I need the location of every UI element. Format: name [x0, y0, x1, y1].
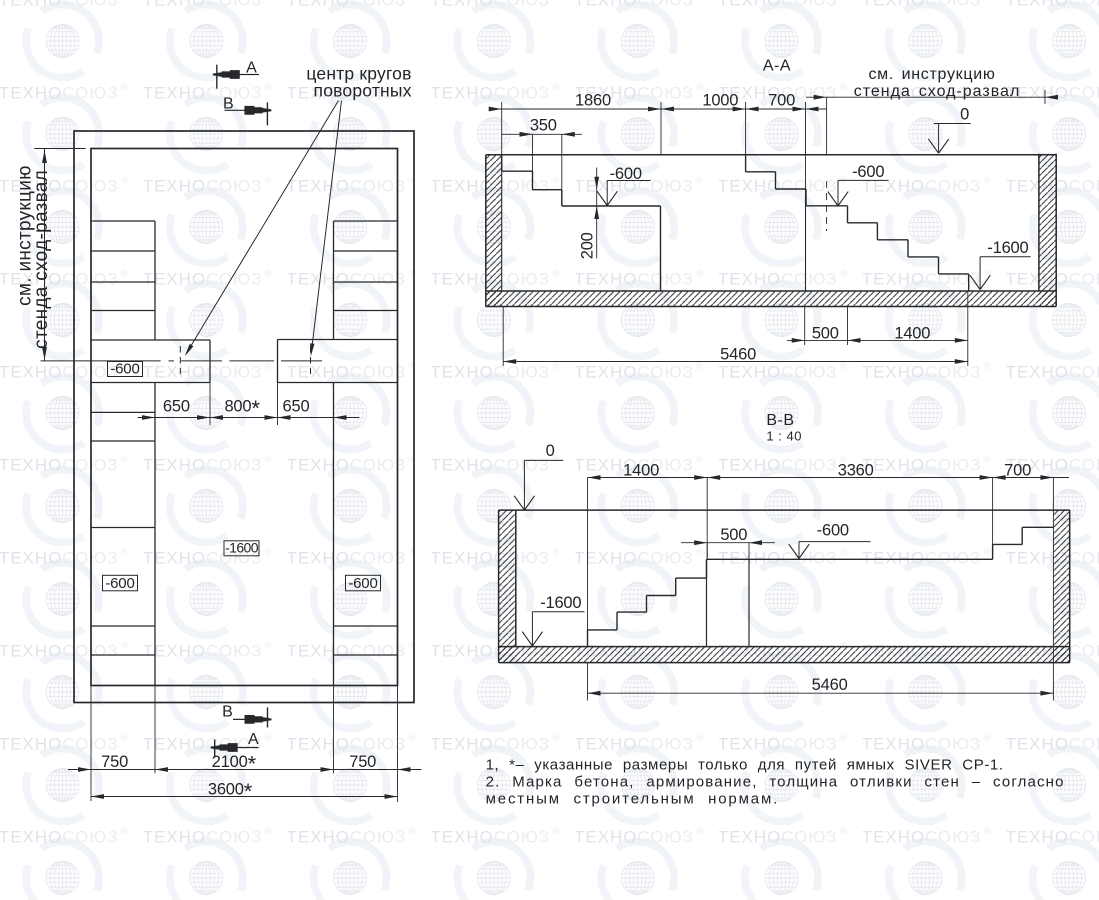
svg-text:2. Марка бетона, армирование,: 2. Марка бетона, армирование, толщина от…	[486, 774, 1065, 791]
svg-text:1 : 40: 1 : 40	[766, 429, 802, 444]
svg-text:650: 650	[163, 397, 190, 415]
svg-text:-1600: -1600	[225, 540, 259, 556]
svg-text:-600: -600	[348, 575, 377, 592]
svg-text:700: 700	[768, 92, 795, 110]
svg-text:-600: -600	[817, 522, 849, 540]
svg-text:3360: 3360	[838, 461, 874, 479]
svg-text:5460: 5460	[812, 676, 848, 694]
svg-text:650: 650	[283, 397, 310, 415]
svg-text:-600: -600	[110, 361, 139, 378]
svg-text:1400: 1400	[623, 461, 659, 479]
svg-text:1, *– указанные размеры только: 1, *– указанные размеры только для путей…	[486, 757, 1004, 774]
svg-text:B-B: B-B	[766, 412, 794, 429]
svg-text:-600: -600	[610, 165, 642, 183]
svg-text:см. инструкцию: см. инструкцию	[868, 66, 995, 83]
svg-text:-600: -600	[105, 575, 134, 592]
svg-text:700: 700	[1004, 461, 1031, 479]
svg-text:-600: -600	[852, 163, 884, 181]
svg-text:0: 0	[546, 442, 555, 460]
svg-text:местным строительным нормам.: местным строительным нормам.	[486, 791, 780, 808]
svg-text:стенда сход-развал: стенда сход-развал	[31, 170, 52, 349]
svg-text:-1600: -1600	[987, 239, 1028, 257]
svg-text:A: A	[248, 731, 259, 748]
svg-text:-1600: -1600	[540, 594, 581, 612]
svg-text:200: 200	[579, 232, 597, 259]
svg-text:750: 750	[101, 753, 128, 771]
svg-text:0: 0	[960, 106, 969, 124]
svg-text:B: B	[222, 704, 233, 721]
svg-text:5460: 5460	[720, 346, 756, 364]
svg-text:1860: 1860	[575, 92, 611, 110]
svg-text:A: A	[246, 60, 257, 77]
svg-text:1400: 1400	[894, 324, 930, 342]
svg-text:поворотных: поворотных	[314, 80, 412, 100]
svg-text:350: 350	[530, 116, 557, 134]
svg-text:A-A: A-A	[763, 58, 791, 75]
svg-text:500: 500	[720, 526, 747, 544]
svg-text:500: 500	[812, 324, 839, 342]
svg-text:750: 750	[349, 753, 376, 771]
svg-text:1000: 1000	[702, 92, 738, 110]
svg-text:B: B	[223, 96, 234, 113]
